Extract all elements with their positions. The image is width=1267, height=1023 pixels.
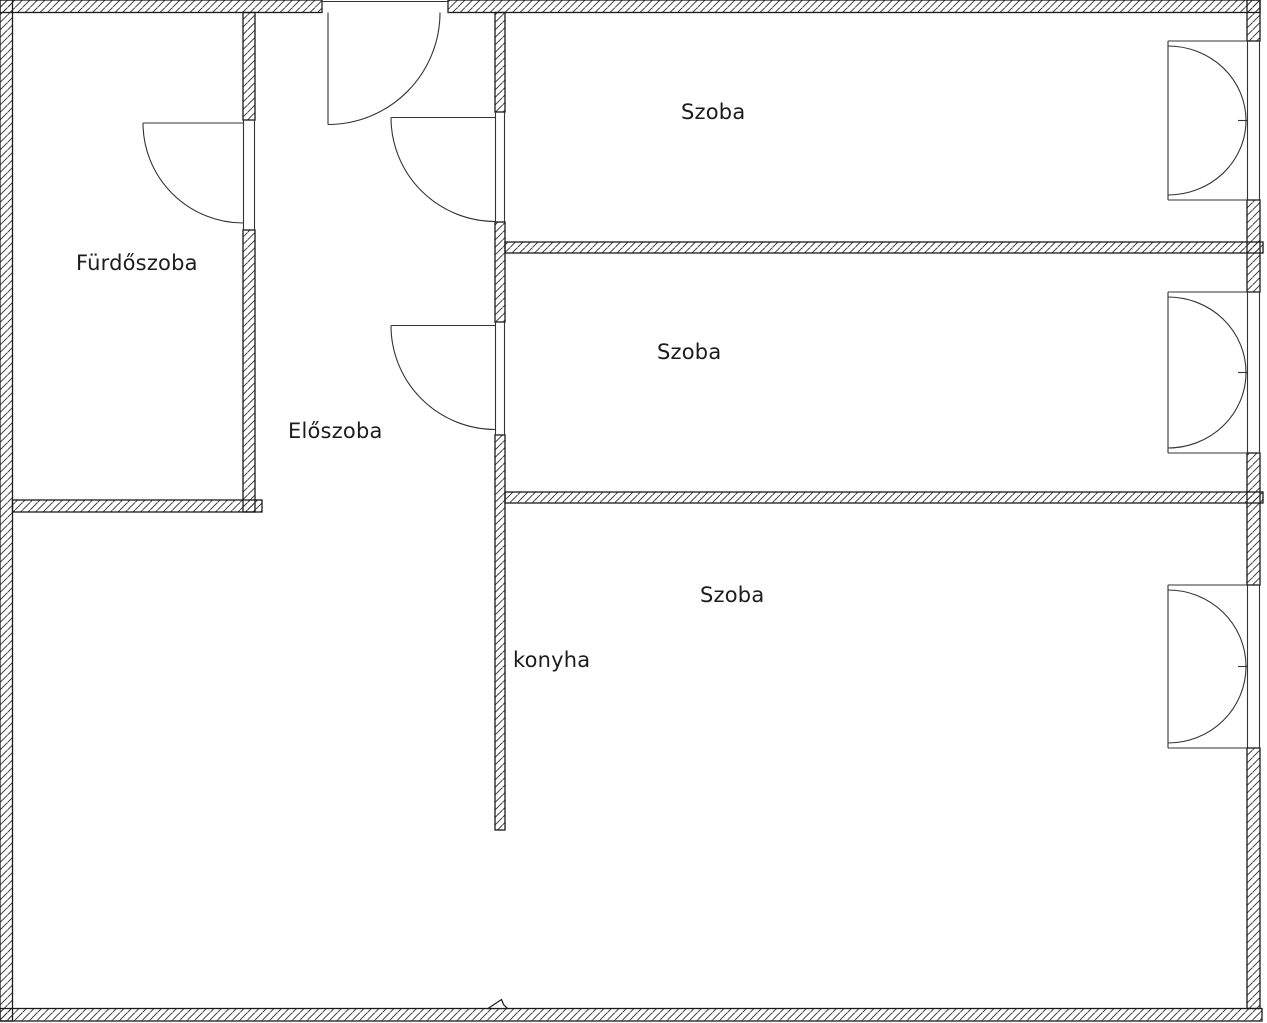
room1-door (391, 112, 505, 222)
wall-right-3 (1247, 453, 1260, 585)
wall-right-4 (1247, 748, 1260, 1009)
entrance-door (322, 0, 448, 125)
room1-room2-wall (505, 242, 1263, 253)
room-label-room-2: Szoba (657, 340, 721, 364)
window-2-casement-top (1168, 297, 1246, 373)
window-1-casement-top (1168, 46, 1246, 121)
bathroom-door-swing (143, 123, 244, 223)
window-3-casement-bottom (1168, 667, 1246, 744)
room-label-kitchen: konyha (513, 648, 590, 672)
room-label-room-3: Szoba (700, 583, 764, 607)
window-2-casement-bottom (1168, 373, 1246, 449)
wall-top-left (0, 0, 322, 13)
window-3-casement-top (1168, 590, 1246, 667)
room1-door-swing (391, 118, 496, 222)
room-label-bathroom: Fürdőszoba (76, 251, 198, 275)
interior-walls (13, 13, 1264, 831)
wall-right-1 (1247, 0, 1260, 41)
central-wall-upper (495, 13, 505, 113)
bottom-wall-notch (488, 1000, 508, 1009)
room2-room3-wall (505, 492, 1263, 503)
room2-door-swing (391, 326, 496, 430)
bathroom-wall-lower (243, 230, 255, 512)
central-wall-lower (495, 435, 505, 830)
bathroom-door (143, 120, 255, 230)
wall-top-right (448, 0, 1260, 13)
room-label-hallway: Előszoba (288, 419, 383, 443)
window-1 (1168, 41, 1260, 200)
floor-plan-drawing (0, 0, 1267, 1023)
entrance-door-swing (328, 13, 440, 125)
room2-door (391, 322, 505, 435)
bathroom-bottom-wall (13, 500, 263, 512)
window-1-casement-bottom (1168, 121, 1246, 196)
wall-left (0, 0, 13, 1021)
bathroom-wall-upper (243, 13, 255, 121)
window-2 (1168, 292, 1260, 453)
wall-bottom (0, 1009, 1262, 1022)
central-wall-middle (495, 222, 505, 322)
floor-plan: Fürdőszoba Előszoba Szoba Szoba Szoba ko… (0, 0, 1267, 1023)
room-label-room-1: Szoba (681, 100, 745, 124)
window-3 (1168, 585, 1260, 748)
